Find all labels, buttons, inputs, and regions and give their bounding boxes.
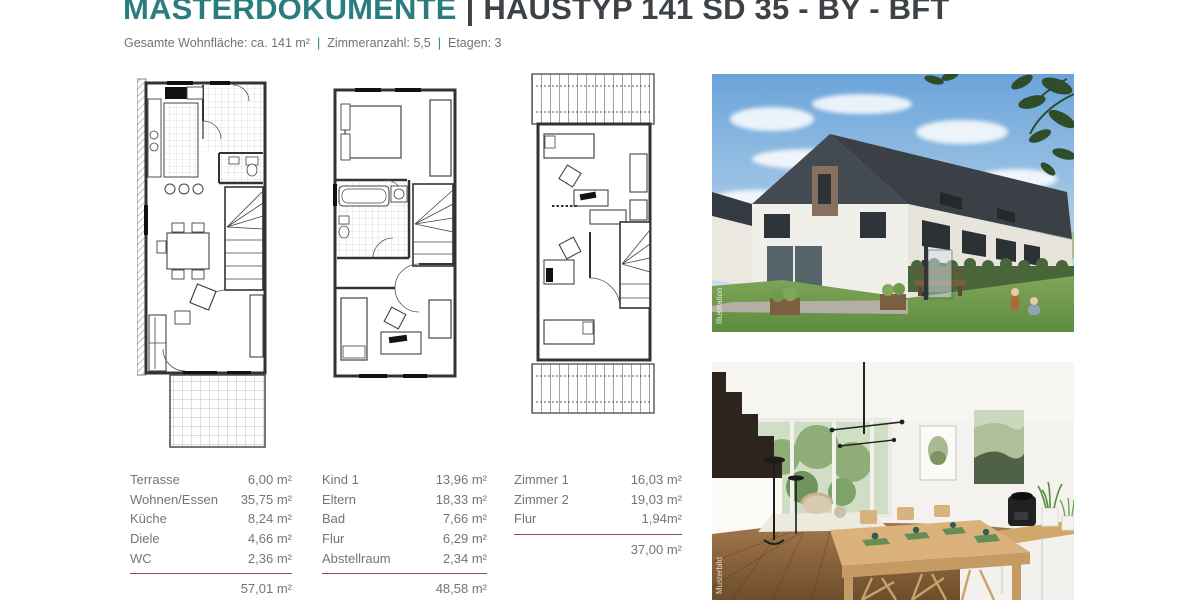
interior-photo: Musterbild — [712, 362, 1074, 600]
area-table-dg: Zimmer 116,03 m² Zimmer 219,03 m² Flur1,… — [514, 470, 682, 557]
room-area: 2,34 m² — [443, 551, 487, 566]
room-area: 13,96 m² — [436, 472, 487, 487]
meta-divider: | — [317, 36, 320, 50]
room-label: Flur — [514, 511, 536, 526]
page-title: MASTERDOKUMENTE — [123, 0, 457, 26]
table-row: Küche8,24 m² — [130, 509, 292, 529]
table-total: 57,01 m² — [130, 574, 292, 596]
document-header: MASTERDOKUMENTE|HAUSTYP 141 SD 35 - BY -… — [123, 0, 950, 27]
table-total: 37,00 m² — [514, 535, 682, 557]
room-label: Eltern — [322, 492, 356, 507]
room-area: 8,24 m² — [248, 511, 292, 526]
exterior-photo: Illustration — [712, 74, 1074, 332]
room-label: Zimmer 2 — [514, 492, 569, 507]
interior-watermark: Musterbild — [715, 557, 724, 594]
room-label: Flur — [322, 531, 344, 546]
table-row: Wohnen/Essen35,75 m² — [130, 490, 292, 510]
room-label: Abstellraum — [322, 551, 391, 566]
room-area: 7,66 m² — [443, 511, 487, 526]
table-row: Diele4,66 m² — [130, 529, 292, 549]
table-row: Eltern18,33 m² — [322, 490, 487, 510]
room-label: Kind 1 — [322, 472, 359, 487]
room-area: 4,66 m² — [248, 531, 292, 546]
room-label: Terrasse — [130, 472, 180, 487]
meta-zimmeranzahl: Zimmeranzahl: 5,5 — [327, 36, 431, 50]
table-row: Terrasse6,00 m² — [130, 470, 292, 490]
room-label: Küche — [130, 511, 167, 526]
table-row: WC2,36 m² — [130, 548, 292, 568]
room-label: WC — [130, 551, 152, 566]
room-area: 18,33 m² — [436, 492, 487, 507]
room-area: 19,03 m² — [631, 492, 682, 507]
meta-wohnflaeche: Gesamte Wohnfläche: ca. 141 m² — [124, 36, 310, 50]
room-area: 16,03 m² — [631, 472, 682, 487]
table-row: Flur6,29 m² — [322, 529, 487, 549]
floorplan-erdgeschoss — [137, 75, 268, 449]
document-page: MASTERDOKUMENTE|HAUSTYP 141 SD 35 - BY -… — [0, 0, 1200, 600]
table-total: 48,58 m² — [322, 574, 487, 596]
room-label: Wohnen/Essen — [130, 492, 218, 507]
document-meta: Gesamte Wohnfläche: ca. 141 m²|Zimmeranz… — [124, 36, 502, 50]
table-row: Flur1,94m² — [514, 509, 682, 529]
room-area: 6,00 m² — [248, 472, 292, 487]
page-subtitle: HAUSTYP 141 SD 35 - BY - BFT — [483, 0, 949, 26]
table-row: Zimmer 219,03 m² — [514, 490, 682, 510]
room-area: 2,36 m² — [248, 551, 292, 566]
table-row: Zimmer 116,03 m² — [514, 470, 682, 490]
table-row: Bad7,66 m² — [322, 509, 487, 529]
room-label: Bad — [322, 511, 345, 526]
room-area: 35,75 m² — [241, 492, 292, 507]
room-label: Diele — [130, 531, 160, 546]
floorplan-obergeschoss — [333, 88, 457, 378]
room-area: 6,29 m² — [443, 531, 487, 546]
title-divider: | — [466, 0, 475, 26]
floorplan-dachgeschoss — [528, 72, 658, 415]
table-row: Kind 113,96 m² — [322, 470, 487, 490]
table-row: Abstellraum2,34 m² — [322, 548, 487, 568]
meta-etagen: Etagen: 3 — [448, 36, 502, 50]
room-label: Zimmer 1 — [514, 472, 569, 487]
exterior-watermark: Illustration — [715, 288, 724, 324]
meta-divider: | — [438, 36, 441, 50]
area-table-eg: Terrasse6,00 m² Wohnen/Essen35,75 m² Küc… — [130, 470, 292, 596]
room-area: 1,94m² — [642, 511, 682, 526]
area-table-og: Kind 113,96 m² Eltern18,33 m² Bad7,66 m²… — [322, 470, 487, 596]
